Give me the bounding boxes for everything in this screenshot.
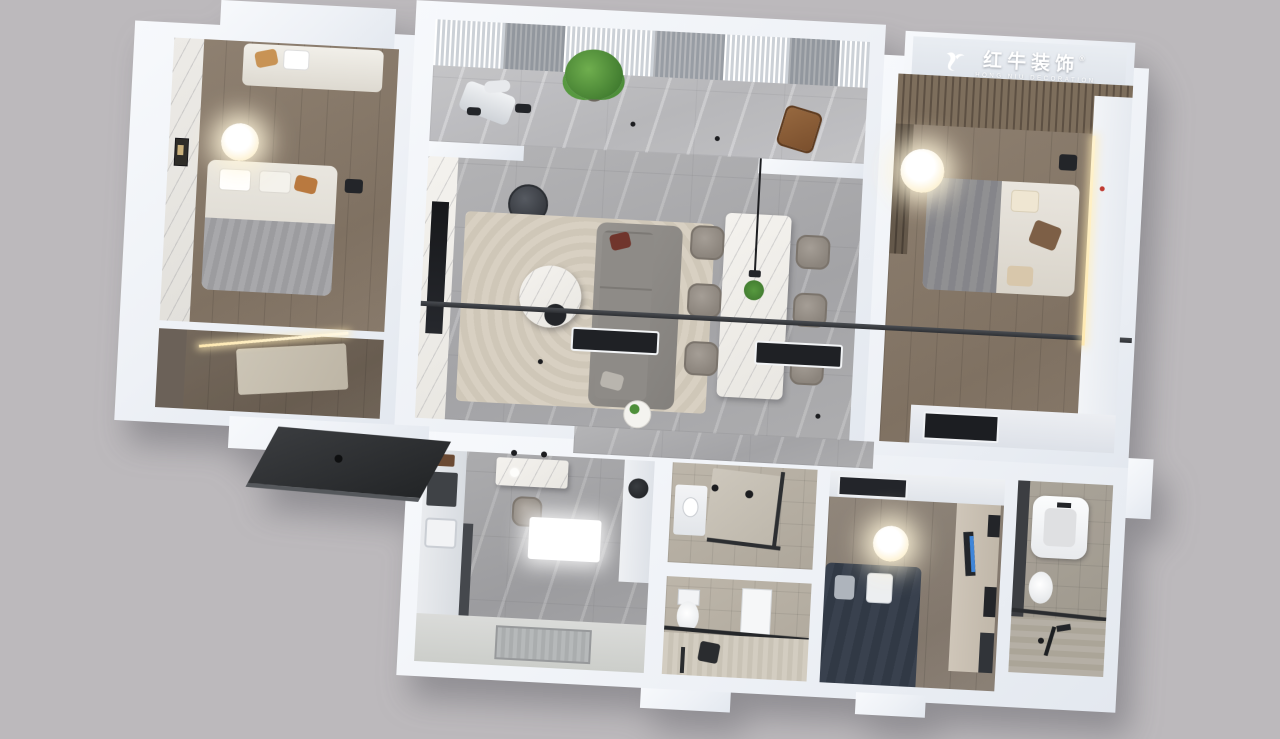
dining-chair (689, 225, 725, 261)
floorplan: 红牛装饰® HONG NIU DECORATION (100, 0, 1165, 738)
bed-left-pillow (258, 170, 291, 194)
ceiling-light-panel (528, 517, 602, 563)
master-nightstand (1059, 154, 1078, 171)
exercise-machine-base (467, 107, 481, 116)
bull-icon (941, 47, 969, 79)
vanity-basin-inner (1043, 508, 1077, 548)
wall-slab-stub-b (855, 692, 926, 718)
bed2-pillow (866, 573, 894, 604)
shower-head (697, 641, 720, 664)
blind-slat-group (503, 23, 565, 72)
ac-vent (571, 327, 660, 356)
exercise-machine-base (515, 103, 531, 113)
master-bed-blanket (922, 177, 1002, 293)
pendant-shade (749, 270, 761, 278)
dining-chair (686, 283, 722, 319)
shelf-dark (978, 633, 994, 674)
bed-left-pillow (218, 168, 251, 192)
closet-dark (155, 328, 187, 408)
breakfast-bar (495, 457, 568, 489)
master-pillow (1010, 190, 1039, 213)
logo-registered: ® (1079, 56, 1090, 64)
wall-slab-stub-right (1126, 458, 1154, 519)
blind-slat-group (653, 31, 725, 81)
ac-unit (837, 475, 908, 500)
wall-slab-stub-a (640, 688, 731, 713)
render-background: 红牛装饰® HONG NIU DECORATION (0, 0, 1280, 720)
wall-art-inner (177, 145, 184, 155)
daybed-pillow-white (283, 49, 310, 70)
blind-slat-group (788, 38, 840, 87)
dining-chair (795, 234, 831, 270)
bed2-pillow-gray (834, 575, 855, 600)
dining-chair (683, 341, 719, 377)
basin-faucet (1057, 502, 1071, 508)
dining-table (716, 213, 792, 400)
bed-left-blanket (201, 217, 335, 296)
master-pillow-tan (1007, 265, 1034, 286)
shelf-dark (983, 587, 997, 618)
nightstand (344, 179, 363, 194)
shelf-dark (987, 515, 1000, 538)
door-mat (494, 625, 592, 664)
kitchen-appliance-white (424, 517, 458, 549)
ac-vent (754, 340, 843, 369)
logo-brand: 红牛装饰 (983, 50, 1080, 76)
dressing-rug (236, 343, 348, 395)
master-tv (922, 411, 999, 443)
